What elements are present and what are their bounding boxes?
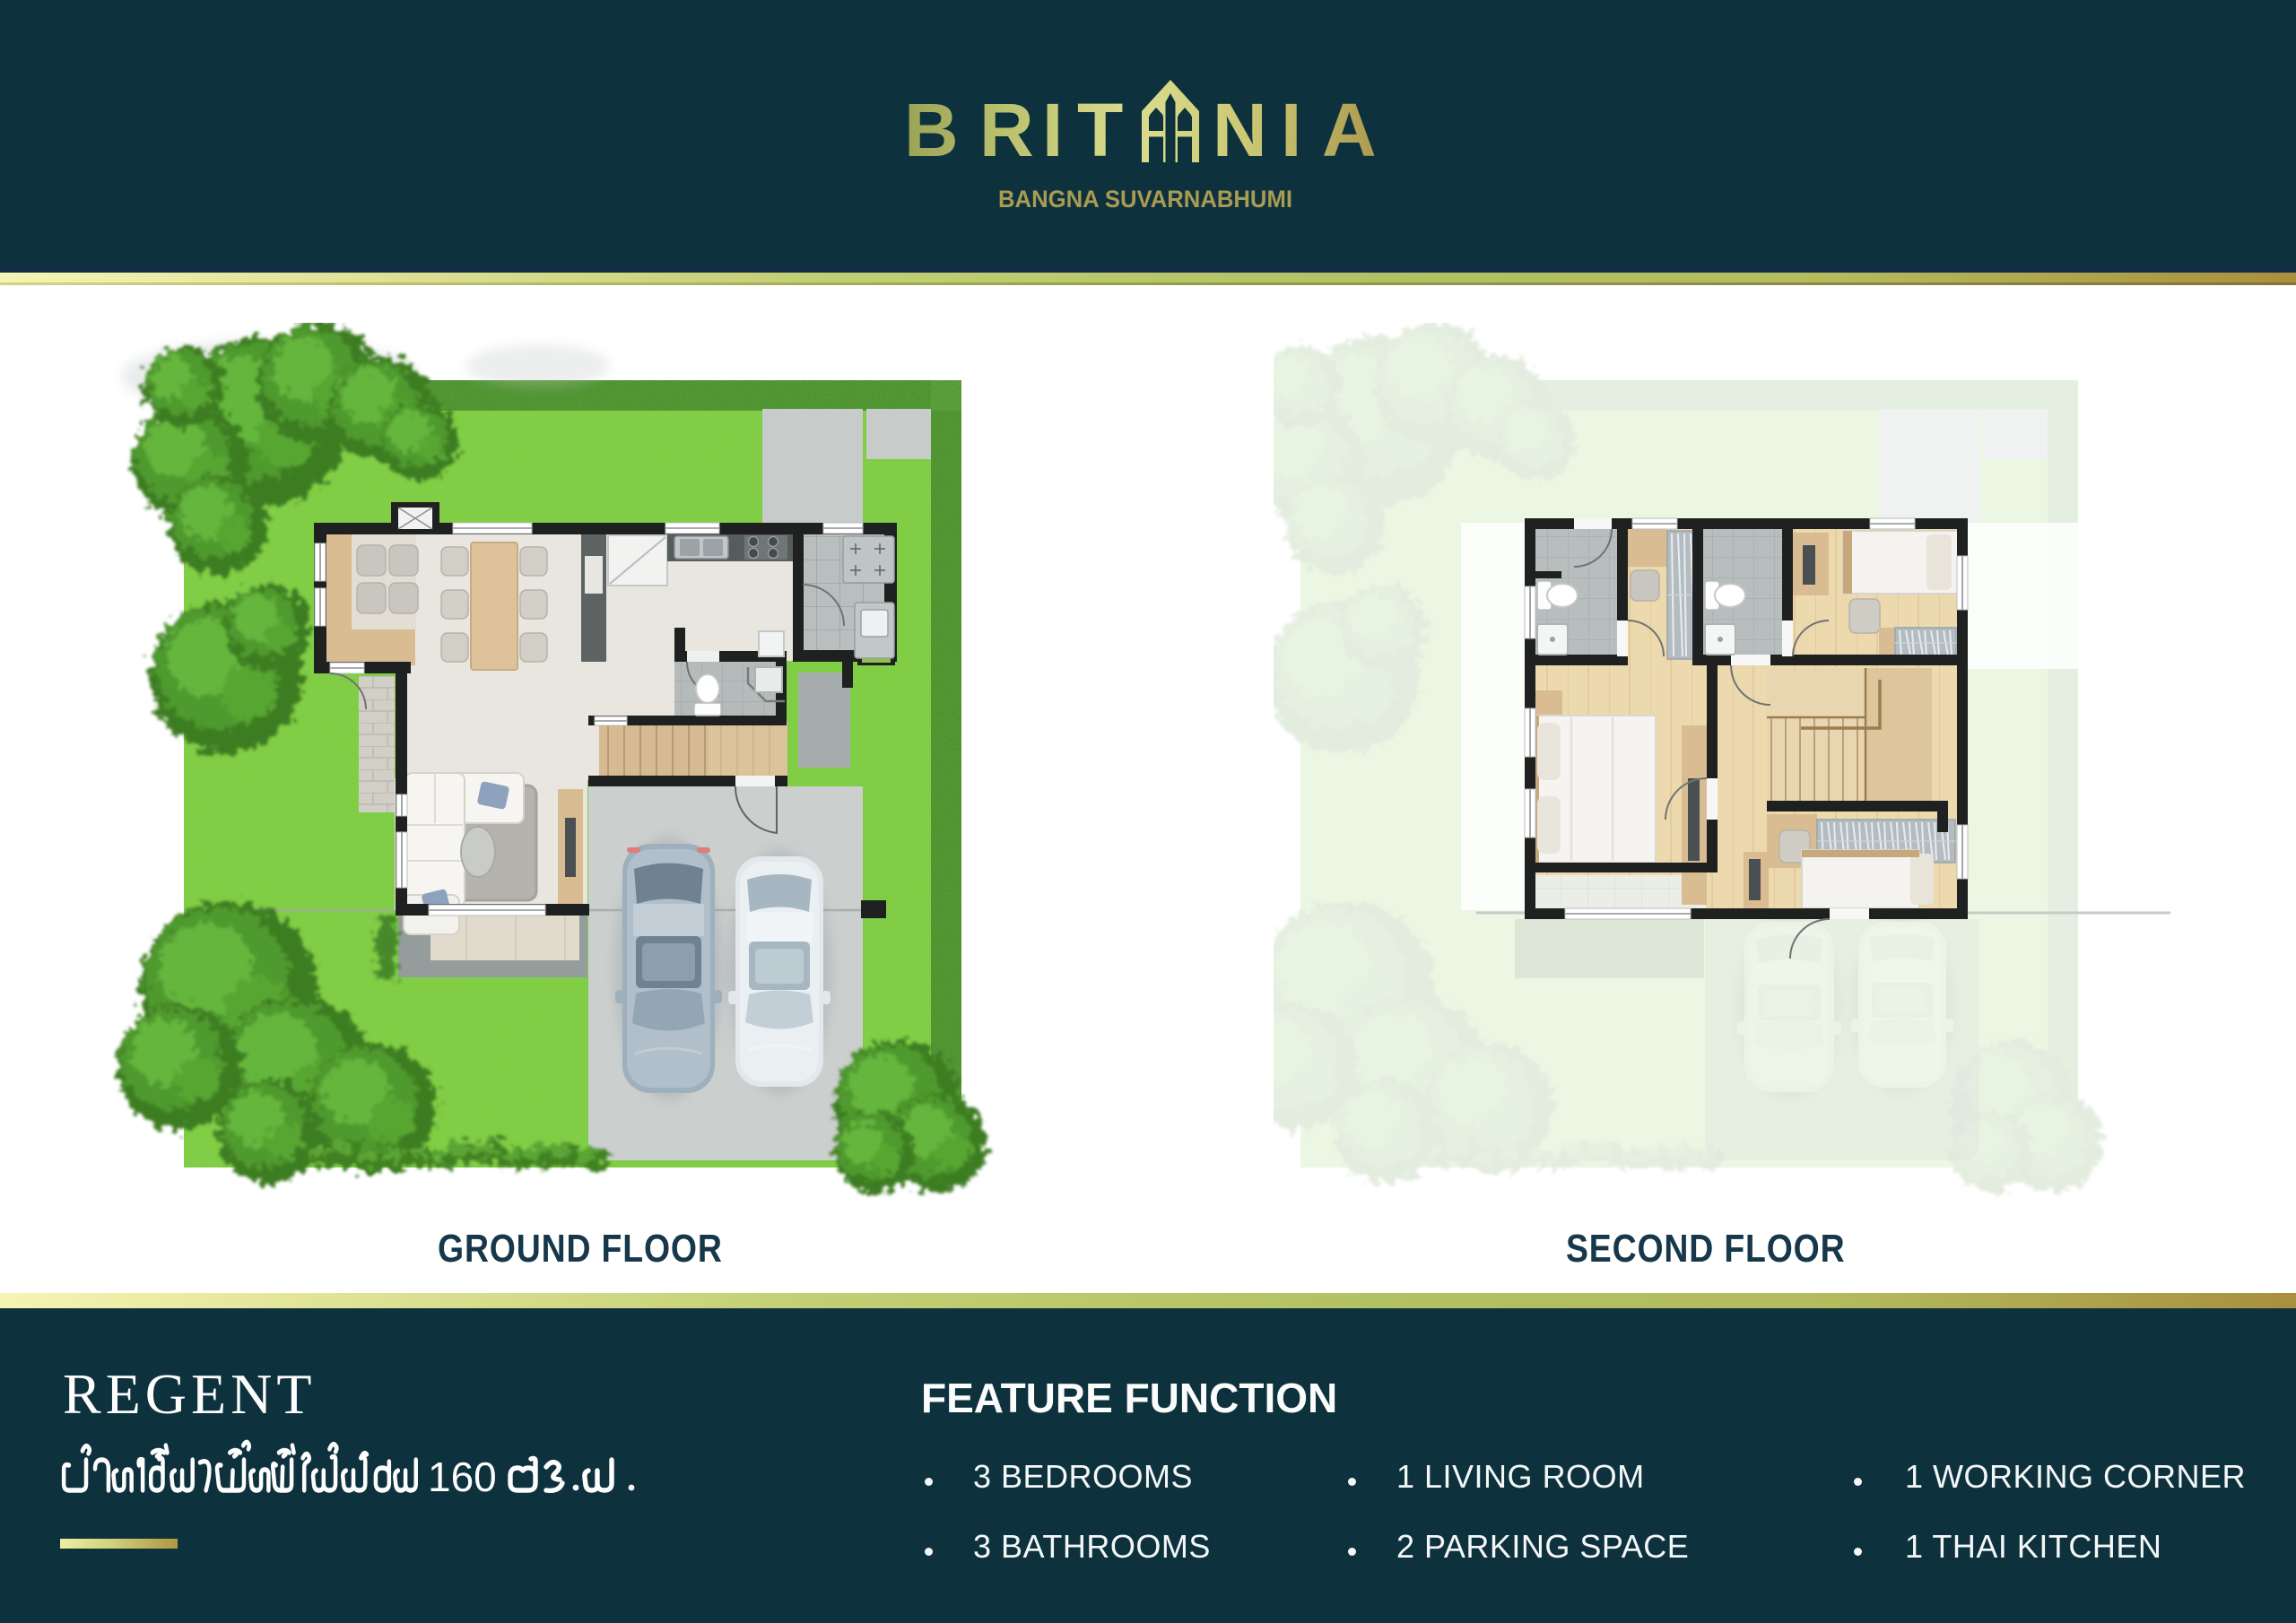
- svg-text:160: 160: [428, 1454, 497, 1500]
- svg-text:A: A: [1322, 88, 1377, 172]
- svg-text:BANGNA SUVARNABHUMI: BANGNA SUVARNABHUMI: [998, 186, 1292, 213]
- svg-text:B: B: [904, 88, 959, 172]
- svg-text:T: T: [1077, 88, 1123, 172]
- svg-text:I: I: [1042, 88, 1063, 172]
- svg-text:R: R: [979, 88, 1034, 172]
- svg-text:N: N: [1213, 88, 1267, 172]
- svg-text:I: I: [1281, 88, 1301, 172]
